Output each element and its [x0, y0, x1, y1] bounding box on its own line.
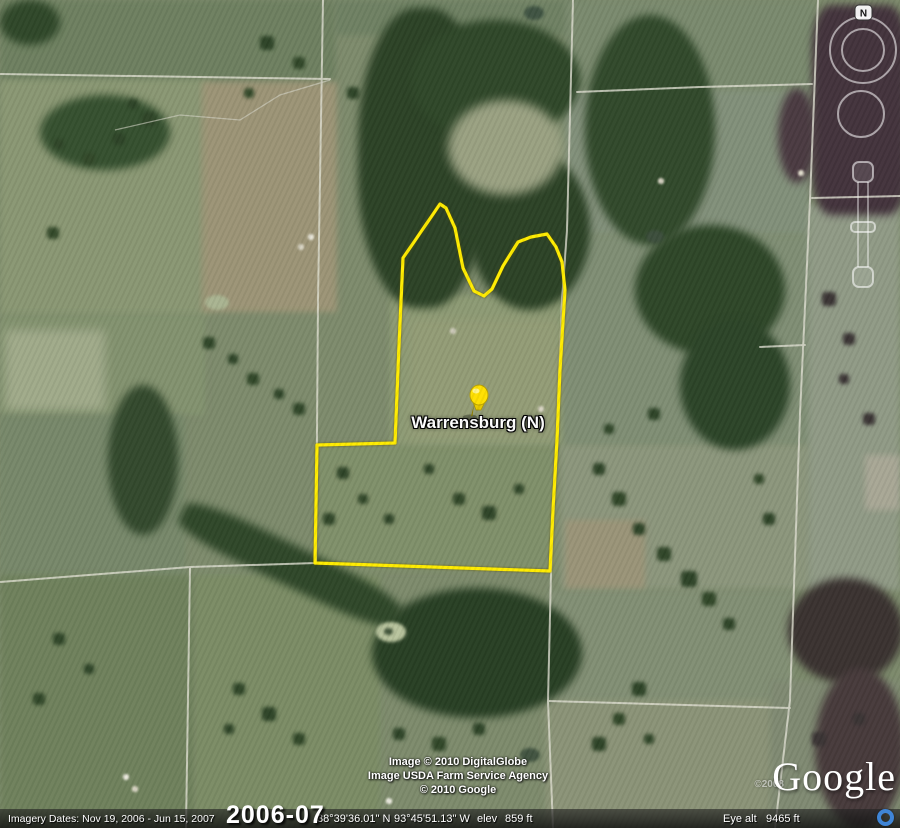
- terrain-patch: [565, 520, 645, 590]
- zoom-slider-handle[interactable]: [851, 222, 875, 232]
- attribution-line: Image USDA Farm Service Agency: [358, 769, 558, 783]
- pond: [524, 6, 544, 20]
- pond: [384, 628, 393, 635]
- terrain-patch: [865, 455, 900, 510]
- imagery-date-range: 2006-07: [226, 803, 325, 828]
- status-bar: Imagery Dates: Nov 19, 2006 - Jun 15, 20…: [0, 809, 900, 828]
- imagery-attribution: Image © 2010 DigitalGlobe Image USDA Far…: [358, 755, 558, 797]
- terrain-patch: [318, 445, 558, 570]
- forest-patch: [778, 88, 816, 183]
- forest-clearing: [448, 100, 563, 195]
- terrain-patch: [5, 330, 105, 410]
- eye-altitude-label: Eye alt: [723, 813, 757, 825]
- terrain-patch: [202, 82, 337, 312]
- compass-ring[interactable]: [830, 17, 896, 83]
- forest-patch: [680, 320, 790, 450]
- placemark-label[interactable]: Warrensburg (N): [411, 413, 545, 433]
- forest-patch: [815, 668, 900, 828]
- forest-patch: [40, 95, 170, 170]
- navigation-controls: N: [820, 0, 900, 300]
- eye-altitude-value: 9465 ft: [766, 813, 800, 825]
- elevation-label: elev: [477, 813, 497, 825]
- forest-patch: [788, 578, 900, 683]
- zoom-in-button[interactable]: [853, 162, 873, 182]
- forest-patch: [0, 0, 60, 45]
- latitude-readout: 38°39'36.01" N: [317, 813, 390, 825]
- streaming-indicator-icon: [877, 809, 894, 826]
- forest-patch: [108, 385, 178, 535]
- north-button-label: N: [860, 9, 867, 20]
- compass-inner-ring[interactable]: [842, 29, 884, 71]
- pond: [205, 295, 229, 310]
- look-joystick[interactable]: [838, 91, 884, 137]
- pond: [646, 230, 664, 243]
- google-logo: Google: [772, 753, 896, 800]
- attribution-line: Image © 2010 DigitalGlobe: [358, 755, 558, 769]
- satellite-map-view[interactable]: Warrensburg (N): [0, 0, 900, 828]
- elevation-value: 859 ft: [505, 813, 533, 825]
- forest-patch: [585, 15, 715, 245]
- terrain-patch: [0, 575, 195, 828]
- google-earth-viewport: Warrensburg (N) N Image © 2010 DigitalGl…: [0, 0, 900, 828]
- zoom-out-button[interactable]: [853, 267, 873, 287]
- forest-patch: [372, 588, 582, 718]
- longitude-readout: 93°45'51.13" W: [394, 813, 470, 825]
- imagery-dates-text: Imagery Dates: Nov 19, 2006 - Jun 15, 20…: [8, 813, 215, 825]
- attribution-line: © 2010 Google: [358, 783, 558, 797]
- building-scatter: [0, 0, 2, 2]
